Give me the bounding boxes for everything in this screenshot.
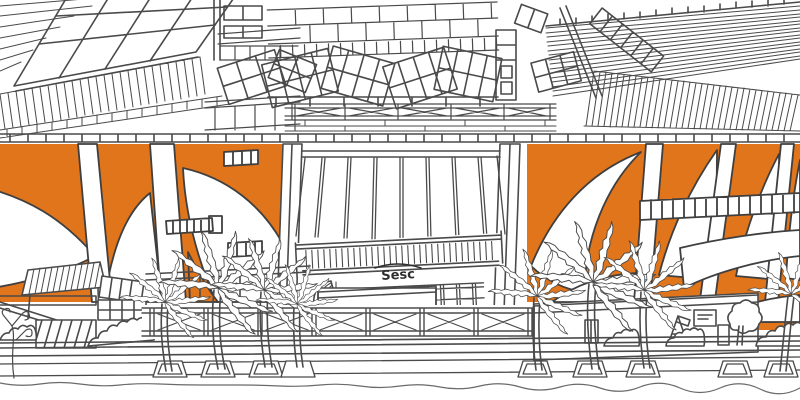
roof-truss	[285, 104, 556, 120]
road-wavy-line	[0, 383, 800, 394]
skylight-grid-mullions	[39, 0, 227, 78]
rooftop-left-skylight	[0, 0, 262, 138]
window-cluster	[224, 150, 258, 166]
sesc-logo-text: Sesc	[381, 267, 415, 284]
sidewalk-lines	[0, 357, 800, 376]
sesc-building-illustration: Sesc	[0, 0, 800, 400]
flat-roof-grid	[267, 2, 499, 58]
planter	[718, 361, 752, 377]
fascia-edge-blocks	[214, 0, 262, 60]
window-row	[98, 300, 146, 320]
rooftop-center-solar	[205, 2, 556, 131]
skylight-grid-frame	[14, 0, 238, 91]
solar-strip	[515, 4, 548, 32]
railing-hatched	[36, 320, 96, 348]
roof-deck-hatch	[0, 0, 96, 71]
steep-roof-hatch	[584, 71, 800, 131]
rooftop-right-hatched	[515, 0, 800, 131]
planter	[249, 361, 283, 377]
roof-tower	[496, 30, 516, 100]
planter	[573, 361, 607, 377]
roof-wall-band	[285, 120, 556, 131]
kiosk-sign-board	[694, 310, 716, 326]
building-top-bar	[302, 151, 500, 157]
planter	[281, 361, 315, 377]
facade-slats	[296, 156, 505, 240]
facade-top-beam	[0, 134, 800, 142]
planters	[153, 361, 798, 377]
